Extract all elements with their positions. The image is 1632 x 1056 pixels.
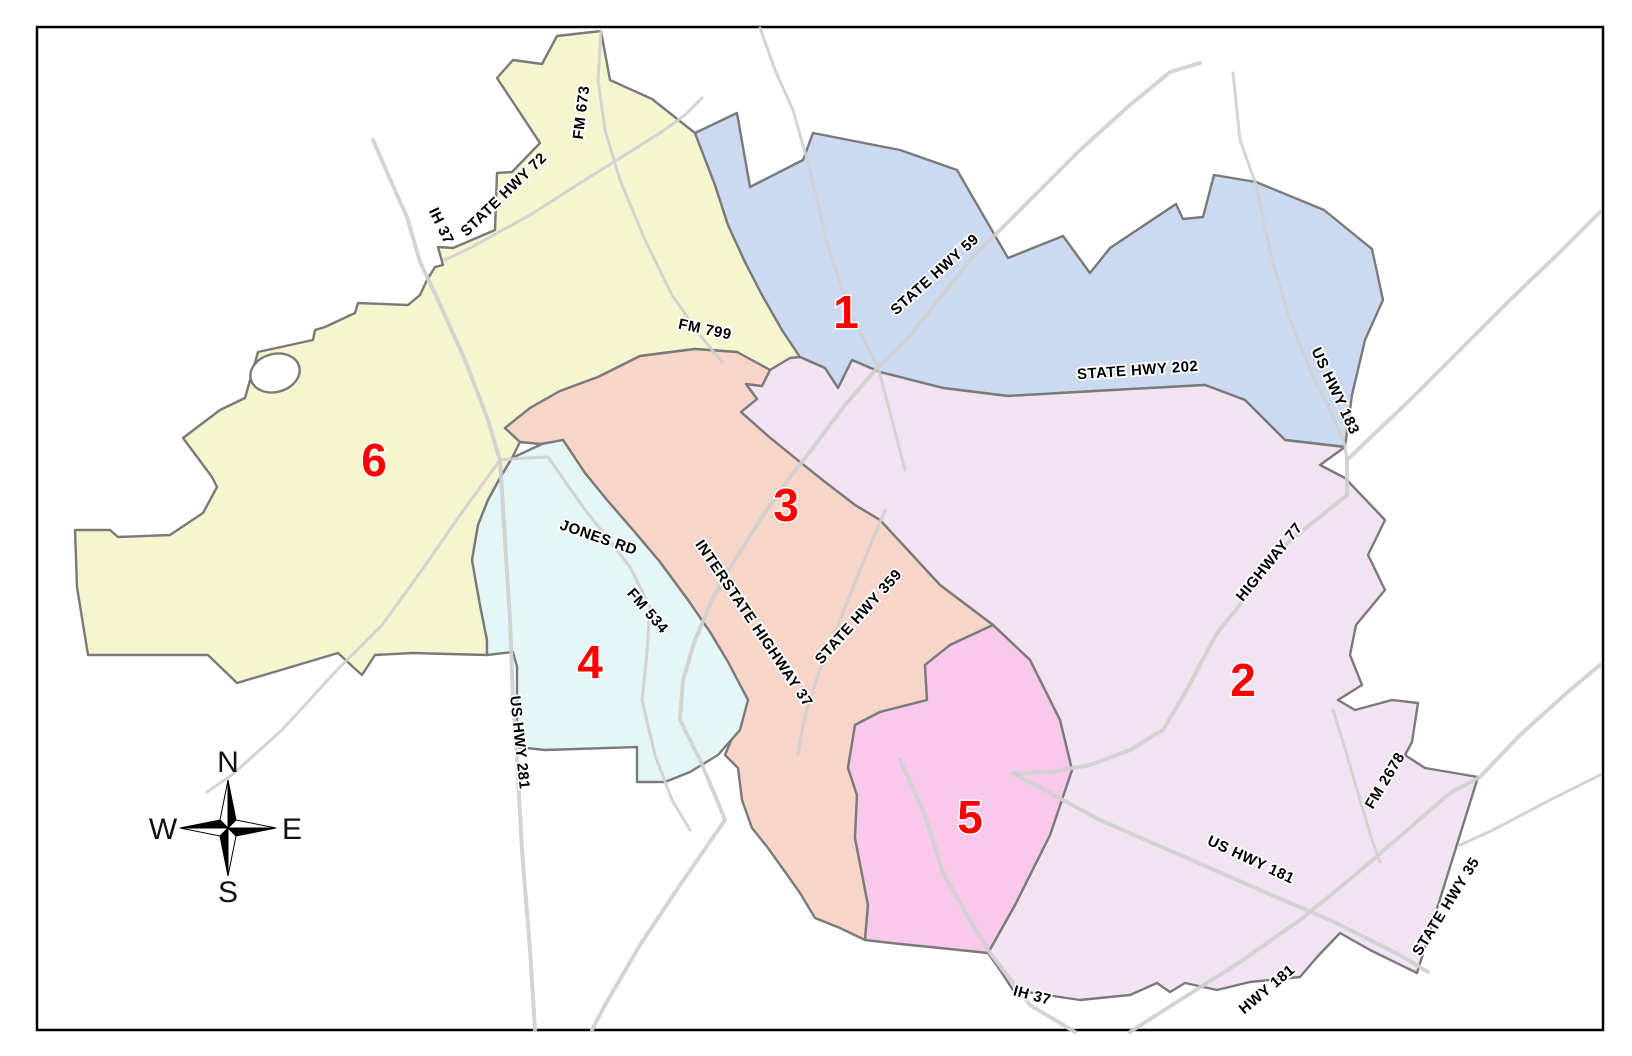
- compass-west-label: W: [149, 813, 178, 846]
- district-6-number: 6: [361, 434, 387, 486]
- district-1-number: 1: [833, 286, 859, 338]
- compass-south-label: S: [218, 876, 238, 909]
- compass-north-label: N: [217, 746, 239, 779]
- district-2-number: 2: [1230, 654, 1256, 706]
- compass-east-label: E: [282, 813, 302, 846]
- precinct-map: IH 37 STATE HWY 72 FM 673 FM 799 STATE H…: [0, 0, 1632, 1056]
- district-4-number: 4: [577, 636, 603, 688]
- district-5-number: 5: [957, 791, 983, 843]
- district-3-number: 3: [773, 479, 799, 531]
